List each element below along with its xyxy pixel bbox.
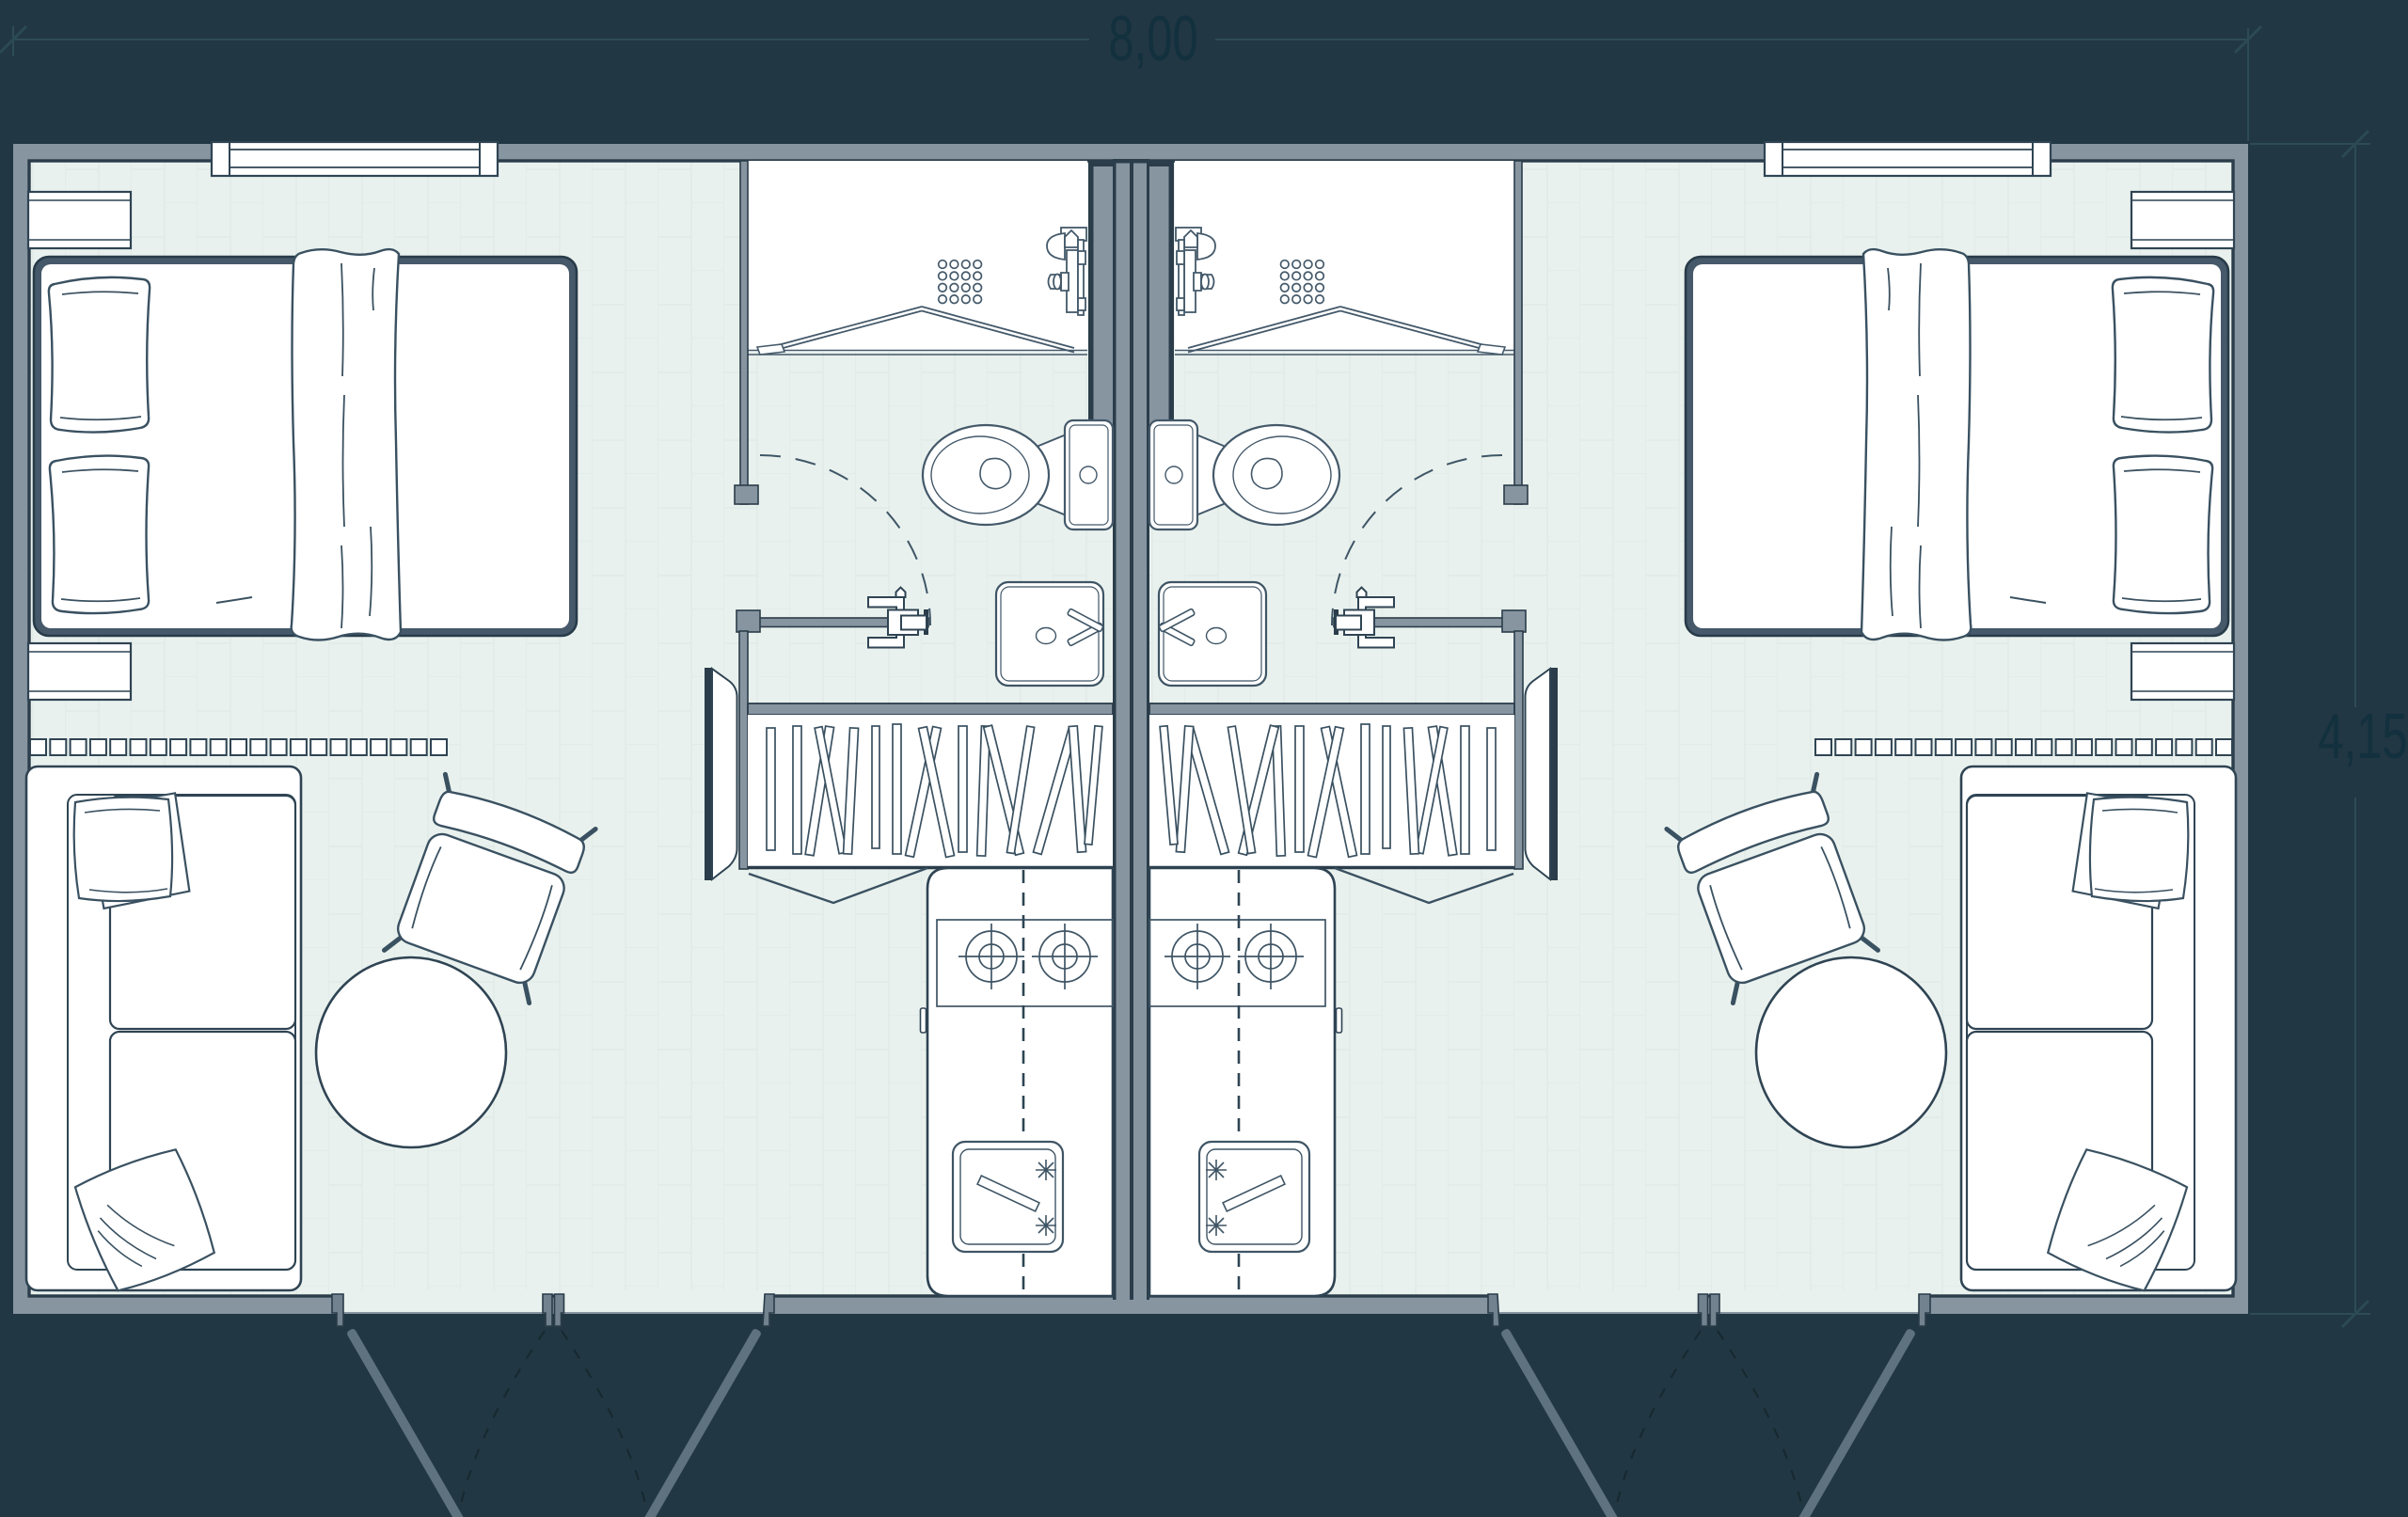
svg-text:4,15: 4,15 (2318, 700, 2407, 772)
svg-text:8,00: 8,00 (1108, 2, 1197, 74)
